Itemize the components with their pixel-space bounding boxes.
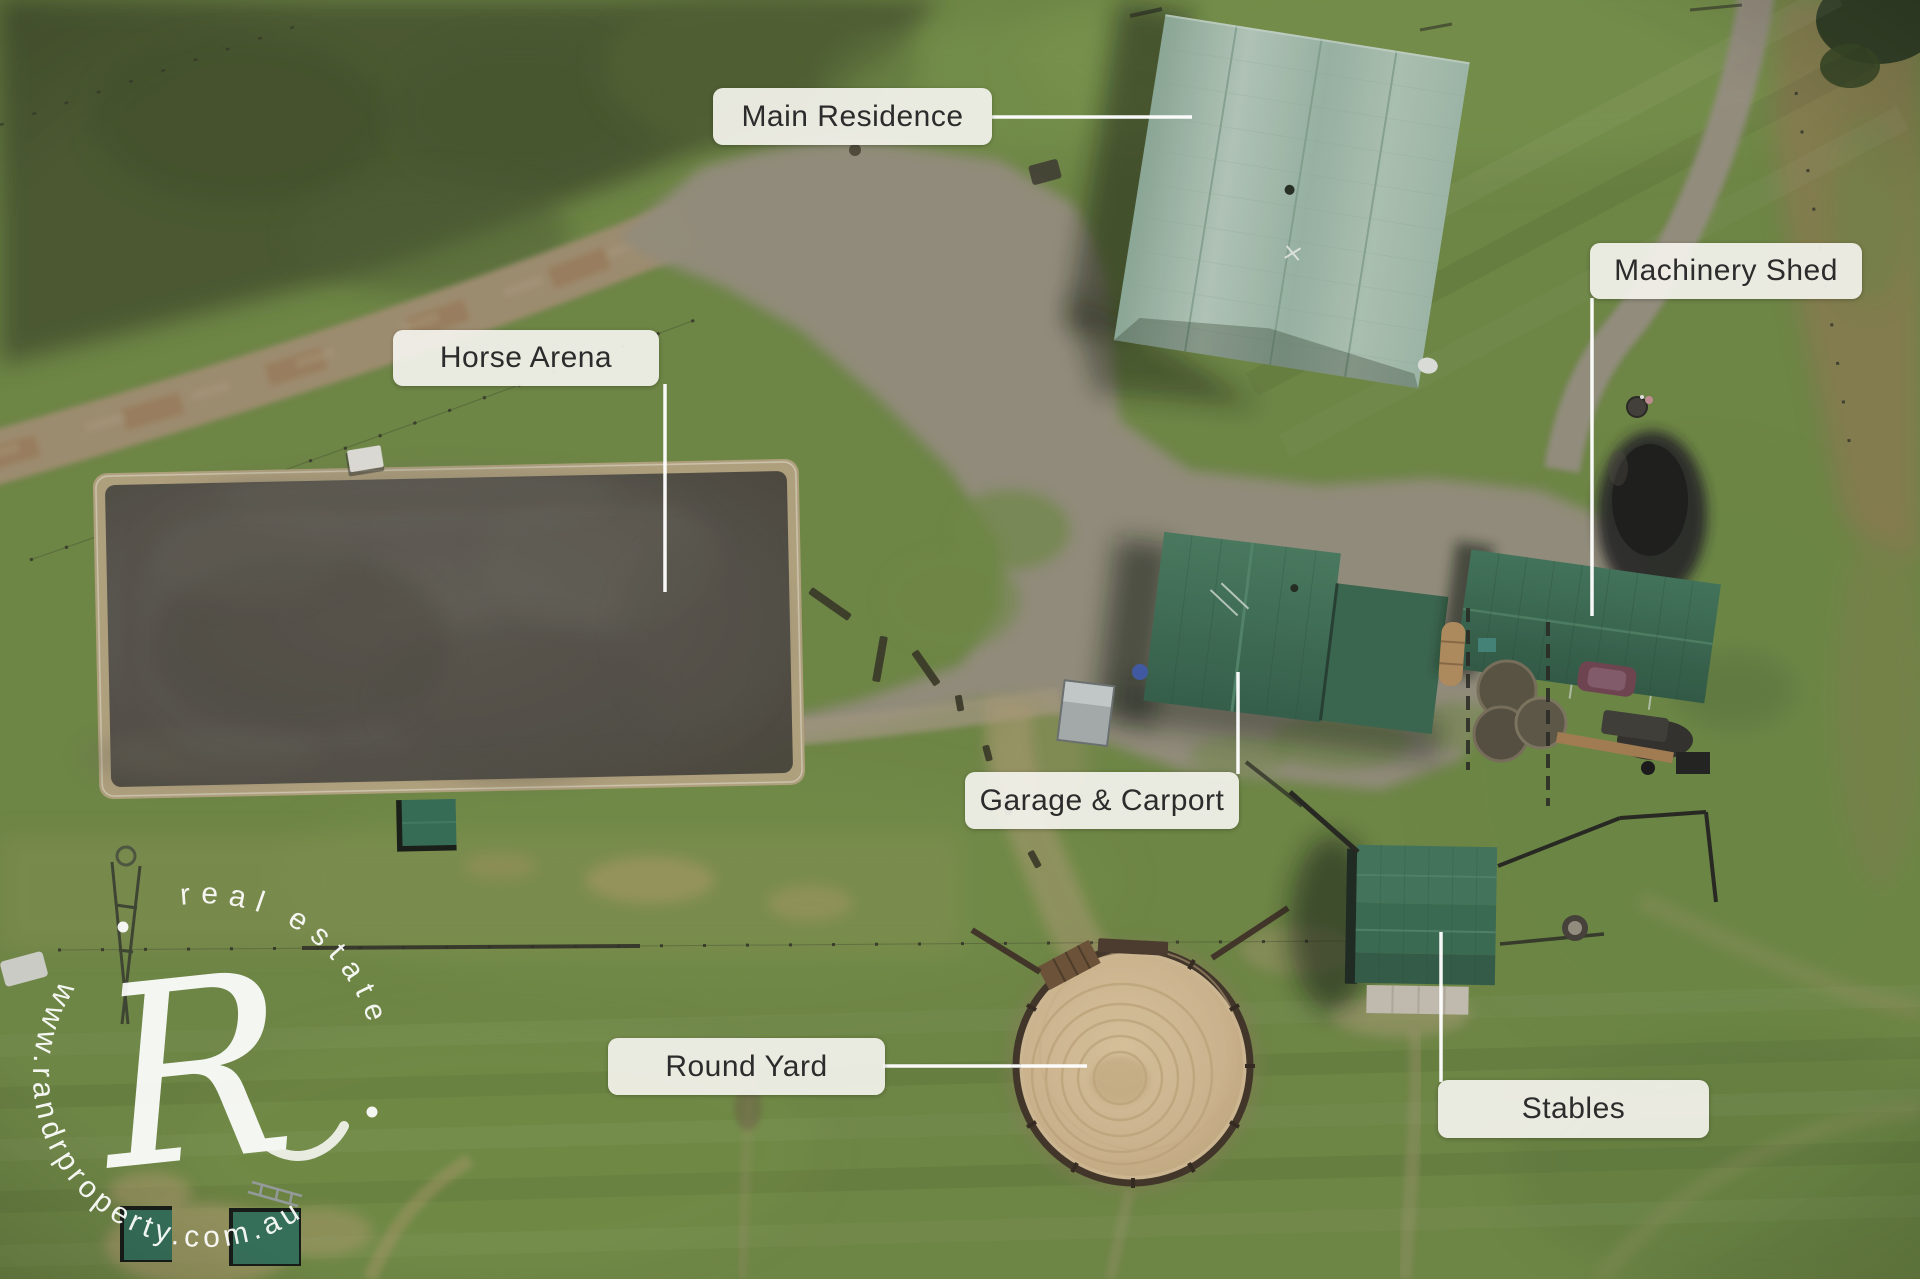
label-garage-carport: Garage & Carport [965,772,1239,829]
label-stables: Stables [1438,1080,1709,1138]
aerial-property-photo: www.randrproperty.com.au real estate R M… [0,0,1920,1279]
label-round-yard-text: Round Yard [665,1050,827,1084]
label-stables-text: Stables [1522,1092,1626,1126]
label-main-residence-text: Main Residence [741,100,963,134]
label-horse-arena-text: Horse Arena [440,341,612,375]
watermark-monogram: R [82,917,304,1226]
watermark-dot-left [118,922,129,933]
label-machinery-shed: Machinery Shed [1590,243,1862,299]
label-main-residence: Main Residence [713,88,992,145]
label-horse-arena: Horse Arena [393,330,659,386]
label-round-yard: Round Yard [608,1038,885,1095]
watermark-dot-right [367,1107,378,1118]
label-garage-carport-text: Garage & Carport [980,784,1225,818]
label-machinery-shed-text: Machinery Shed [1614,254,1838,288]
